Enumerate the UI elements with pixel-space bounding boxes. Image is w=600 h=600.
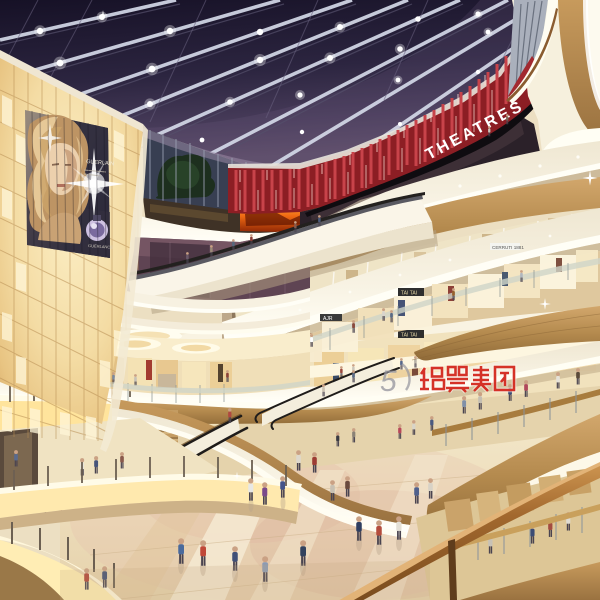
svg-text:CERRUTI 1881: CERRUTI 1881	[492, 245, 524, 250]
svg-text:5: 5	[380, 365, 397, 398]
svg-text:AJR: AJR	[323, 316, 333, 322]
svg-text:TAI TAI: TAI TAI	[401, 333, 417, 339]
svg-text:TAI TAI: TAI TAI	[401, 291, 417, 297]
